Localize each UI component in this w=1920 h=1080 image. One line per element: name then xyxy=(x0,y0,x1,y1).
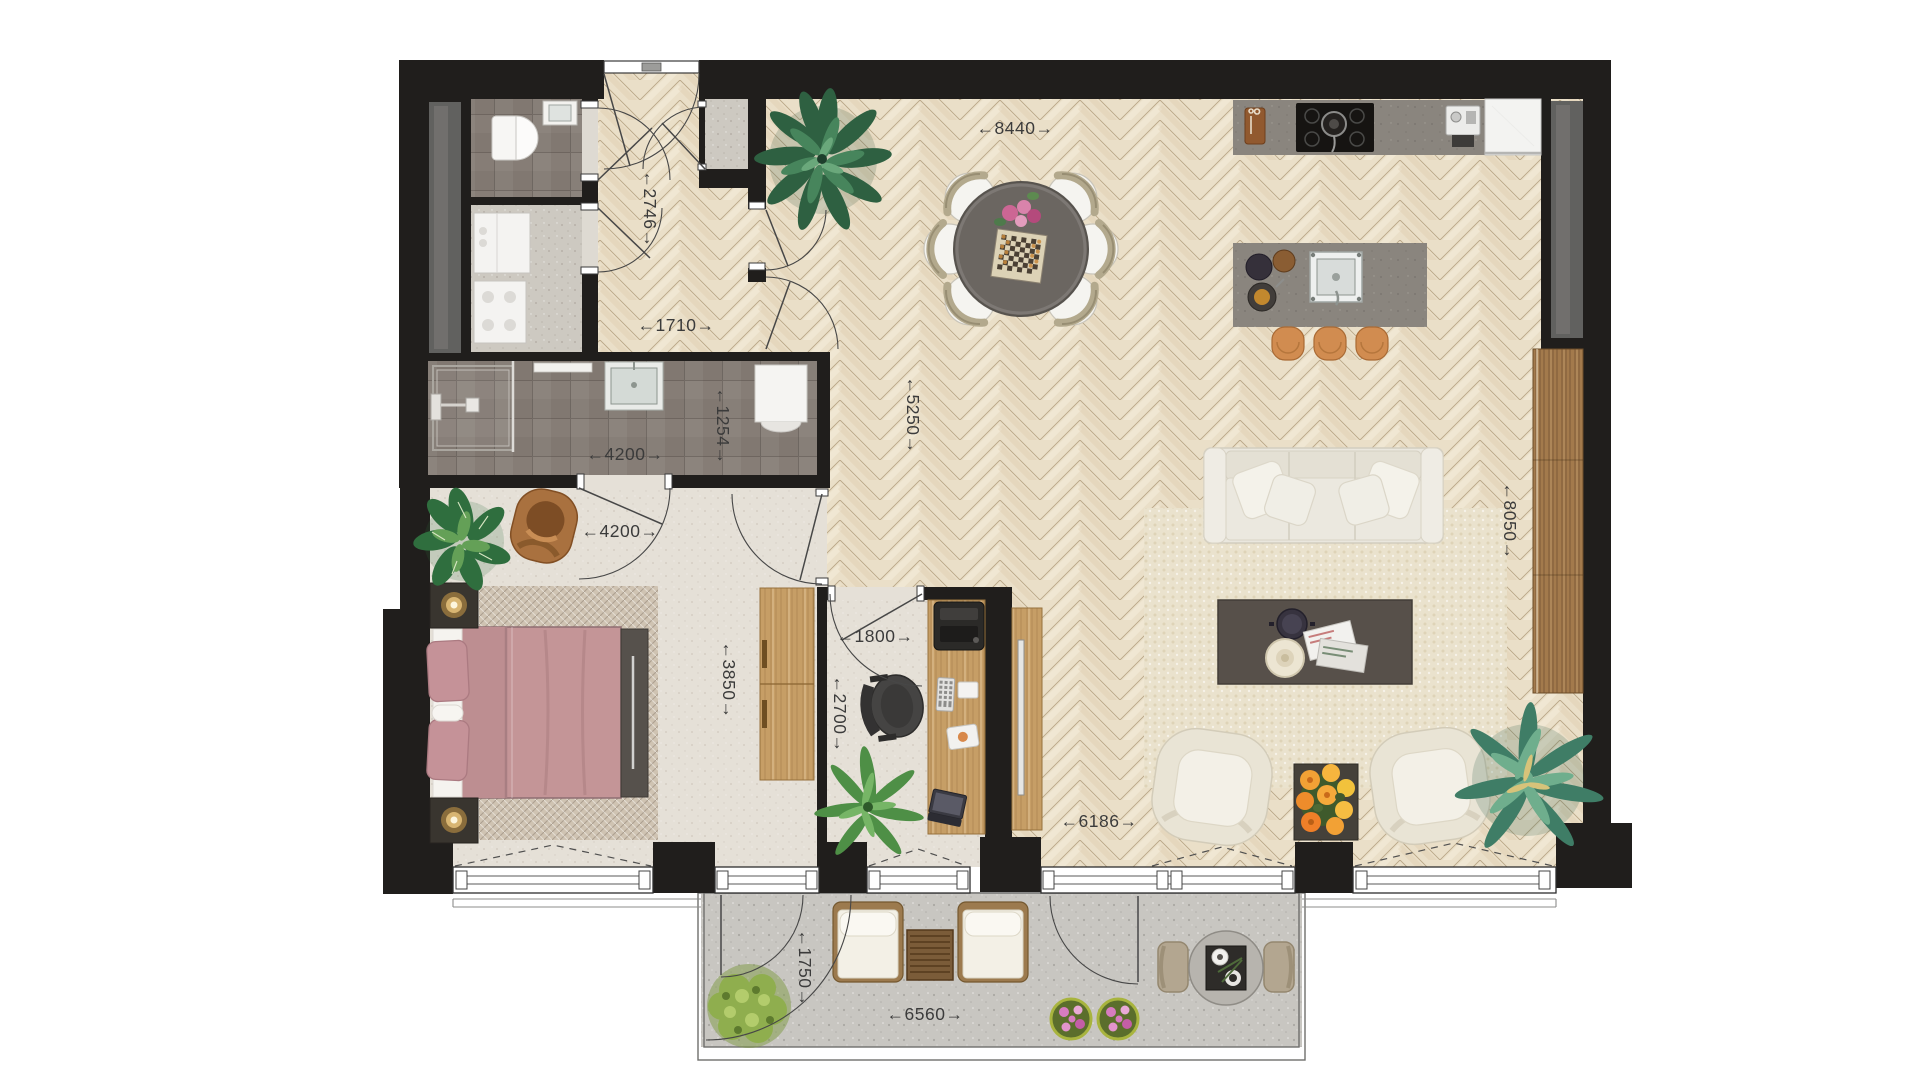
svg-text:←1710→: ←1710→ xyxy=(638,315,715,335)
svg-text:←1254→: ←1254→ xyxy=(713,388,733,465)
svg-text:←4200→: ←4200→ xyxy=(582,521,659,541)
svg-text:←3850→: ←3850→ xyxy=(719,642,739,719)
svg-text:←8050→: ←8050→ xyxy=(1500,483,1520,560)
svg-text:←5250→: ←5250→ xyxy=(903,377,923,454)
svg-text:←2746→: ←2746→ xyxy=(640,171,660,248)
svg-text:←1750→: ←1750→ xyxy=(795,930,815,1007)
svg-text:←4200→: ←4200→ xyxy=(587,444,664,464)
svg-text:←8440→: ←8440→ xyxy=(977,118,1054,138)
svg-text:←2700→: ←2700→ xyxy=(830,676,850,753)
svg-text:←1800→: ←1800→ xyxy=(837,626,914,646)
svg-text:←6560→: ←6560→ xyxy=(887,1004,964,1024)
svg-text:←6186→: ←6186→ xyxy=(1061,811,1138,831)
